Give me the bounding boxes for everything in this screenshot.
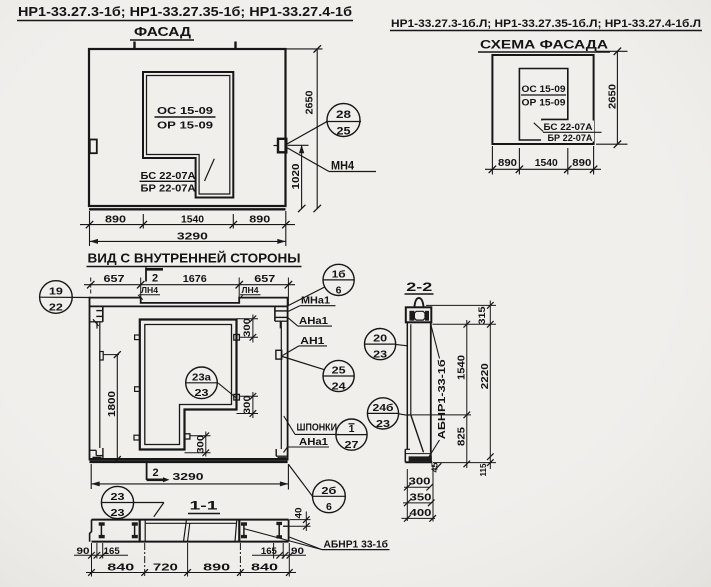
svg-text:165: 165 — [261, 546, 278, 557]
svg-text:165: 165 — [104, 546, 121, 557]
svg-text:1800: 1800 — [107, 390, 118, 417]
svg-text:1676: 1676 — [183, 274, 207, 285]
svg-text:27: 27 — [345, 439, 359, 451]
svg-text:СХЕМА ФАСАДА: СХЕМА ФАСАДА — [480, 38, 608, 52]
svg-text:840: 840 — [107, 562, 134, 574]
svg-text:2: 2 — [153, 467, 159, 479]
svg-text:23: 23 — [376, 418, 390, 430]
svg-text:2650: 2650 — [608, 84, 619, 109]
svg-text:АНа1: АНа1 — [299, 316, 328, 327]
svg-text:350: 350 — [410, 491, 432, 503]
svg-text:МН4: МН4 — [331, 161, 355, 173]
svg-text:720: 720 — [153, 562, 178, 574]
svg-text:657: 657 — [104, 274, 126, 285]
svg-text:ОС 15-09: ОС 15-09 — [522, 84, 566, 95]
svg-text:БС 22-07А: БС 22-07А — [141, 170, 196, 182]
svg-text:657: 657 — [254, 274, 276, 285]
svg-text:2: 2 — [152, 273, 158, 285]
svg-text:ШПОНКИ: ШПОНКИ — [297, 423, 338, 434]
svg-text:АБНР1-33-1б: АБНР1-33-1б — [436, 359, 448, 439]
svg-text:ФАСАД: ФАСАД — [134, 24, 192, 39]
svg-text:28: 28 — [336, 109, 351, 121]
svg-text:2650: 2650 — [305, 90, 316, 114]
svg-text:25: 25 — [332, 365, 346, 377]
svg-text:23: 23 — [195, 387, 209, 399]
svg-text:23: 23 — [373, 349, 387, 361]
svg-text:2220: 2220 — [480, 363, 491, 390]
svg-text:23: 23 — [111, 491, 125, 503]
svg-text:1020: 1020 — [291, 163, 302, 190]
svg-text:22: 22 — [49, 302, 63, 314]
svg-text:ЛН4: ЛН4 — [242, 286, 260, 295]
svg-text:890: 890 — [203, 562, 230, 574]
svg-text:1540: 1540 — [181, 214, 204, 225]
svg-text:90: 90 — [291, 546, 304, 557]
svg-text:24: 24 — [332, 381, 346, 393]
svg-text:25: 25 — [337, 126, 351, 138]
svg-text:23: 23 — [111, 507, 125, 519]
svg-text:300: 300 — [242, 395, 253, 414]
svg-text:АБНР1 33-1б: АБНР1 33-1б — [324, 539, 389, 551]
svg-text:НР1-33.27.3-1б.Л; НР1-33.27.35: НР1-33.27.3-1б.Л; НР1-33.27.35-1б.Л; НР1… — [391, 18, 701, 30]
svg-text:1-1: 1-1 — [190, 501, 219, 513]
svg-text:ОС 15-09: ОС 15-09 — [157, 105, 213, 117]
svg-text:300: 300 — [196, 435, 207, 454]
svg-text:БР 22-07А: БР 22-07А — [141, 183, 196, 195]
svg-text:400: 400 — [410, 507, 432, 519]
svg-text:1540: 1540 — [535, 158, 558, 169]
svg-text:2б: 2б — [321, 485, 337, 497]
svg-text:890: 890 — [249, 214, 271, 225]
svg-text:1: 1 — [349, 423, 355, 435]
svg-text:40: 40 — [294, 508, 304, 519]
svg-text:ЛН4: ЛН4 — [141, 286, 159, 295]
svg-text:24б: 24б — [373, 402, 395, 414]
svg-text:2-2: 2-2 — [406, 282, 432, 294]
svg-text:БС 22-07А: БС 22-07А — [544, 122, 593, 133]
svg-text:1540: 1540 — [456, 355, 467, 380]
svg-text:890: 890 — [572, 158, 591, 169]
svg-text:ВИД С ВНУТРЕННЕЙ СТОРОНЫ: ВИД С ВНУТРЕННЕЙ СТОРОНЫ — [88, 251, 301, 266]
svg-text:ОР 15-09: ОР 15-09 — [522, 98, 566, 109]
svg-text:6: 6 — [326, 501, 332, 513]
svg-text:890: 890 — [498, 158, 517, 169]
svg-text:НР1-33.27.3-1б; НР1-33.27.35-1: НР1-33.27.3-1б; НР1-33.27.35-1б; НР1-33.… — [18, 4, 352, 19]
svg-text:23а: 23а — [192, 371, 211, 383]
svg-text:19: 19 — [49, 286, 63, 298]
svg-text:3290: 3290 — [173, 472, 205, 483]
svg-text:300: 300 — [242, 318, 253, 337]
svg-text:АНа1: АНа1 — [299, 437, 328, 448]
svg-text:6: 6 — [336, 284, 342, 296]
svg-text:90: 90 — [77, 546, 90, 557]
svg-text:3290: 3290 — [177, 231, 209, 242]
svg-text:115: 115 — [478, 463, 488, 476]
svg-text:825: 825 — [456, 427, 467, 446]
svg-text:МНа1: МНа1 — [301, 296, 330, 307]
svg-text:45: 45 — [429, 462, 439, 472]
svg-text:БР 22-07А: БР 22-07А — [548, 133, 593, 144]
svg-text:315: 315 — [477, 306, 488, 325]
svg-text:1б: 1б — [332, 268, 347, 280]
svg-text:20: 20 — [373, 333, 387, 345]
svg-text:840: 840 — [251, 562, 278, 574]
svg-text:ОР 15-09: ОР 15-09 — [157, 120, 213, 132]
svg-text:890: 890 — [105, 214, 127, 225]
svg-text:300: 300 — [409, 476, 431, 488]
